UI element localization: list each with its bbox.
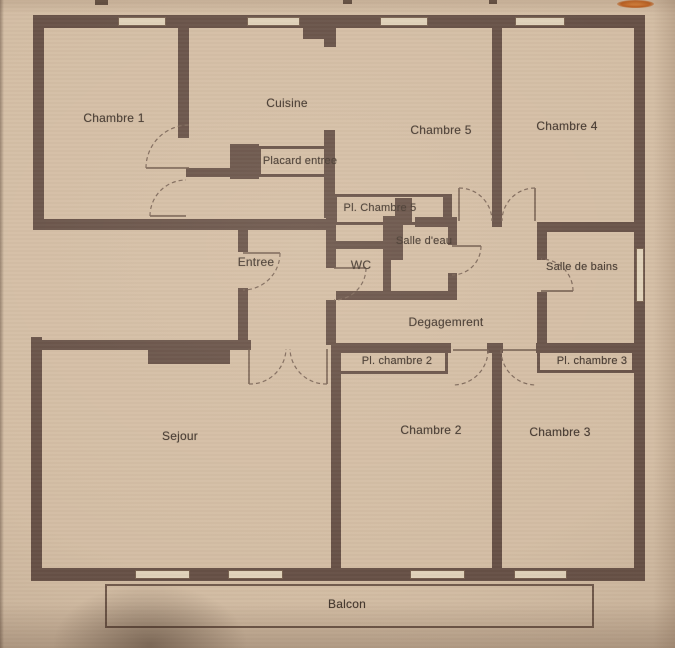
room-label-placard-entree: Placard entree bbox=[263, 155, 337, 167]
room-label-pl-chambre5: Pl. Chambre 5 bbox=[344, 202, 417, 214]
room-label-wc: WC bbox=[351, 258, 371, 272]
room-label-chambre2: Chambre 2 bbox=[400, 423, 461, 437]
room-label-chambre1: Chambre 1 bbox=[83, 111, 144, 125]
room-label-sejour: Sejour bbox=[162, 429, 198, 443]
door-arc-chambre5 bbox=[459, 188, 492, 221]
door-arc-sejour-left bbox=[249, 349, 286, 384]
room-label-cuisine: Cuisine bbox=[266, 96, 307, 110]
door-arc-wc bbox=[334, 268, 366, 300]
room-label-salle-deau: Salle d'eau bbox=[396, 235, 452, 247]
door-arc-sejour-right bbox=[290, 349, 327, 384]
room-label-salle-de-bains: Salle de bains bbox=[546, 261, 618, 273]
room-label-entree: Entree bbox=[238, 255, 275, 269]
door-arc-corridor bbox=[150, 180, 186, 216]
orange-pen-mark bbox=[617, 0, 654, 8]
door-arcs-layer bbox=[0, 0, 675, 648]
door-arc-chambre3 bbox=[501, 350, 536, 385]
door-arc-chambre1 bbox=[146, 125, 189, 168]
room-label-balcon: Balcon bbox=[328, 597, 366, 611]
room-label-degagement: Degagemrent bbox=[409, 315, 484, 329]
door-arc-salle-deau bbox=[452, 246, 481, 275]
room-label-pl-chambre2: Pl. chambre 2 bbox=[362, 355, 432, 367]
floor-plan-photo: Chambre 1 Cuisine Placard entree Chambre… bbox=[0, 0, 675, 648]
room-label-chambre4: Chambre 4 bbox=[536, 119, 597, 133]
room-label-pl-chambre3: Pl. chambre 3 bbox=[557, 355, 627, 367]
room-label-chambre5: Chambre 5 bbox=[410, 123, 471, 137]
door-arc-chambre4 bbox=[502, 188, 535, 221]
door-arc-chambre2 bbox=[453, 350, 488, 385]
room-label-chambre3: Chambre 3 bbox=[529, 425, 590, 439]
